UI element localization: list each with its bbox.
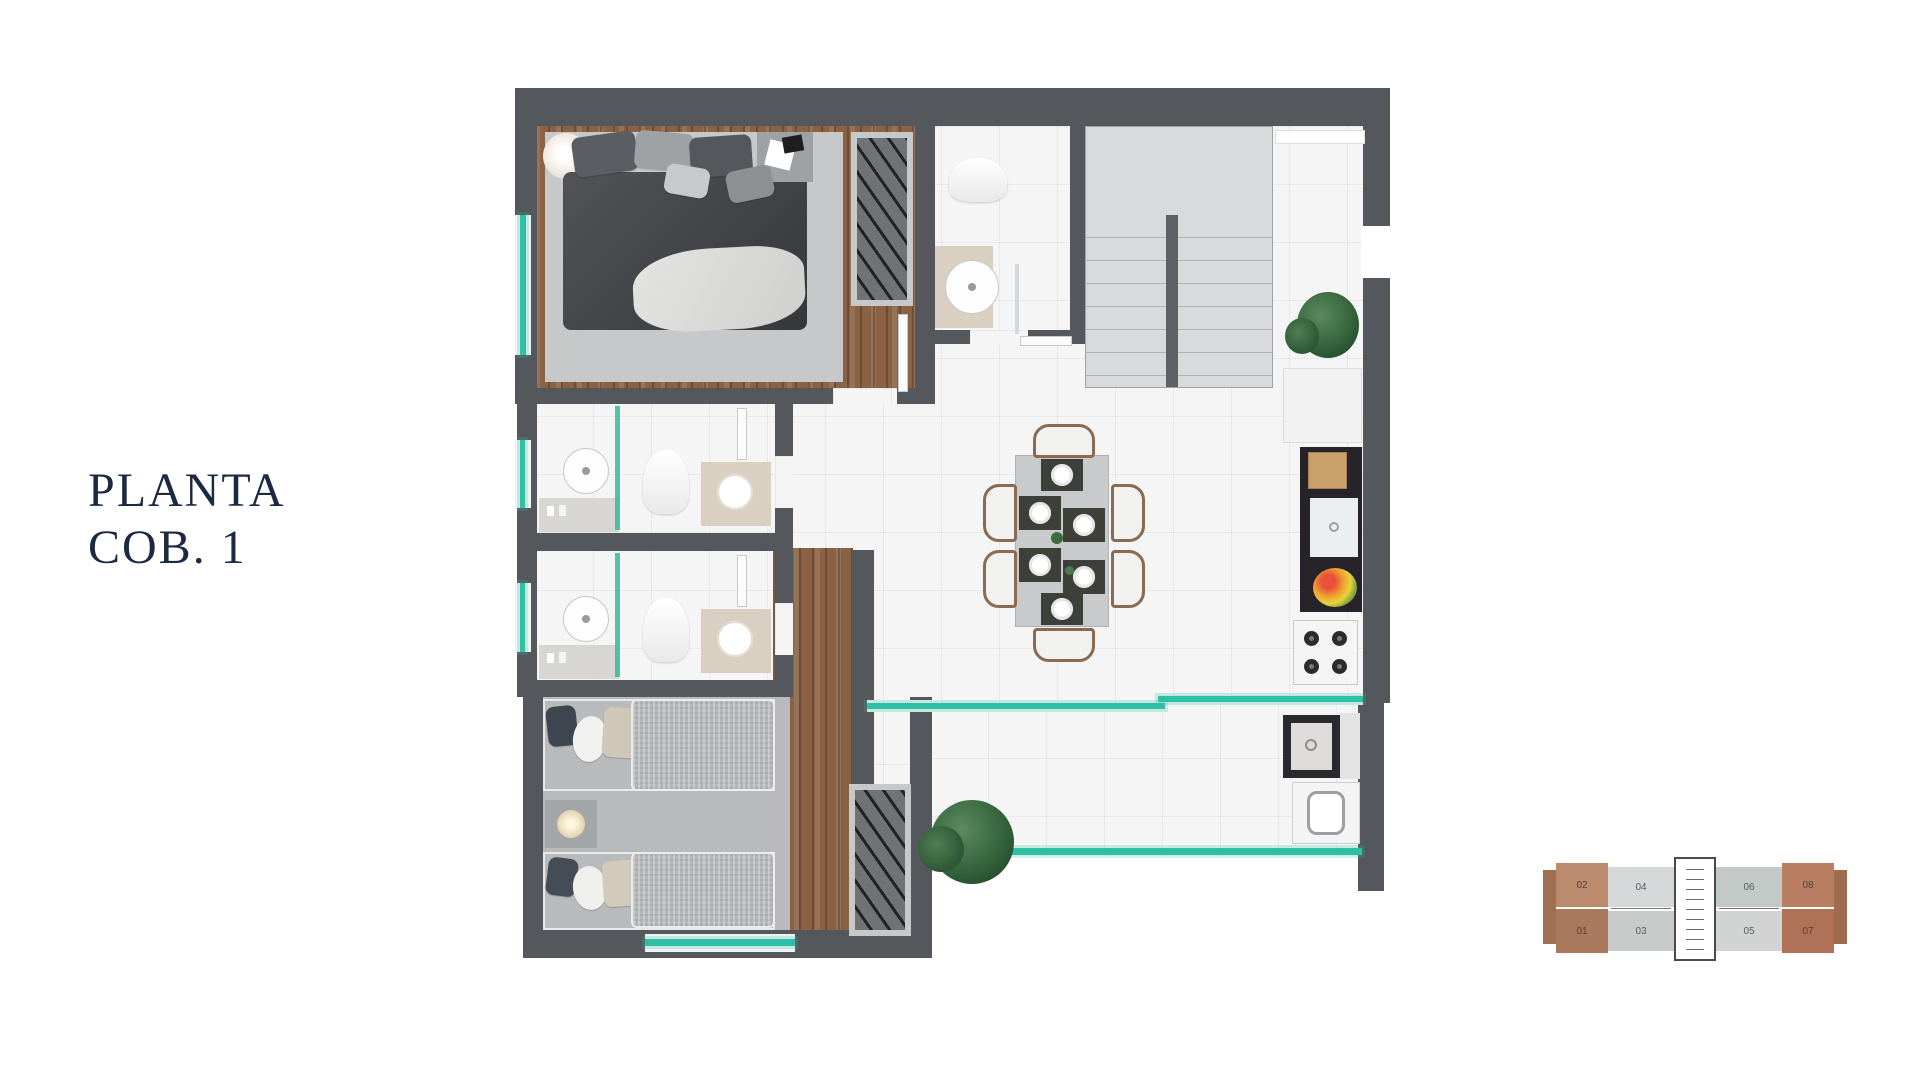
- dining-chair: [1033, 424, 1095, 458]
- window-bath3: [520, 583, 525, 652]
- door-leaf-bath2: [737, 408, 747, 460]
- page-title: PLANTA COB. 1: [88, 462, 285, 576]
- balcony-plant: [930, 800, 1014, 884]
- stove: [1293, 620, 1358, 685]
- wall-bath1-east: [1070, 88, 1085, 344]
- unit-07-label: 07: [1802, 926, 1813, 937]
- bath2-bottle: [559, 505, 566, 516]
- key-plan-unit-04: 04: [1608, 867, 1674, 907]
- key-plan-left-tab: [1543, 870, 1556, 944]
- key-plan-unit-02: 02: [1556, 863, 1608, 907]
- place-setting: [1019, 548, 1061, 582]
- wall-bedroom2-east: [910, 697, 932, 958]
- kitchen-plant: [1297, 292, 1359, 358]
- balcony-glass-left: [867, 703, 1165, 709]
- bath3-shower-glass: [615, 553, 620, 677]
- washer-door: [1307, 791, 1345, 835]
- bedroom2-nightstand: [545, 800, 597, 848]
- laundry-tank: [1283, 715, 1340, 778]
- staircase: [1085, 126, 1273, 388]
- bath3-vanity: [539, 645, 619, 679]
- cutting-board: [1308, 452, 1347, 489]
- bath2-basin: [717, 474, 753, 510]
- dining-chair: [983, 550, 1017, 608]
- unit-04-label: 04: [1635, 882, 1646, 893]
- place-setting: [1019, 496, 1061, 530]
- bath1-toilet: [949, 158, 1007, 202]
- wall-notch: [1361, 226, 1393, 278]
- stove-burner: [1304, 659, 1319, 674]
- key-plan-unit-03: 03: [1608, 911, 1674, 951]
- title-line-2: COB. 1: [88, 519, 285, 576]
- bath3-bottle: [547, 653, 554, 663]
- dining-chair: [1033, 628, 1095, 662]
- unit-03-label: 03: [1635, 926, 1646, 937]
- bath1-shower-glass: [1015, 264, 1019, 334]
- bedroom2-lamp: [557, 810, 585, 838]
- bath2-bottle: [547, 506, 554, 516]
- place-setting: [1041, 459, 1083, 491]
- key-plan-corridor-line: [1611, 908, 1671, 909]
- dining-chair: [1111, 484, 1145, 542]
- washing-machine: [1292, 782, 1360, 844]
- tank-drain: [1305, 739, 1317, 751]
- window-bath2: [520, 440, 525, 508]
- wall-right-lower: [1358, 703, 1384, 891]
- unit-02-label: 02: [1576, 880, 1587, 891]
- bed2-blanket: [633, 701, 773, 789]
- window-bedroom1: [520, 215, 526, 355]
- bedroom1-closet: [851, 132, 913, 306]
- kitchen-sink: [1310, 498, 1358, 557]
- floor-plan: [515, 88, 1395, 968]
- table-centerpiece-plant: [1065, 566, 1074, 575]
- key-plan-corridor-line: [1719, 908, 1779, 909]
- stove-burner: [1332, 631, 1347, 646]
- kitchen-counter-white: [1283, 368, 1362, 443]
- bath3-toilet: [643, 598, 689, 662]
- key-plan-unit-07: 07: [1782, 909, 1834, 953]
- door-opening-bath3: [775, 603, 793, 655]
- bath2-shower-glass: [615, 406, 620, 530]
- place-setting: [1041, 593, 1083, 625]
- stair-steps: [1086, 237, 1272, 387]
- stove-burner: [1304, 631, 1319, 646]
- door-leaf-bedroom1: [898, 314, 908, 392]
- stove-burner: [1332, 659, 1347, 674]
- lobby-shelf: [1275, 130, 1365, 144]
- door-opening-bedroom1: [833, 388, 897, 404]
- wall-bedroom2-north: [517, 680, 775, 697]
- unit-01-label: 01: [1576, 926, 1587, 937]
- unit-08-label: 08: [1802, 880, 1813, 891]
- key-plan-core: [1674, 857, 1716, 961]
- key-plan-right-tab: [1834, 870, 1847, 944]
- bath2-shower-head: [563, 448, 609, 494]
- door-leaf-bath1: [1020, 336, 1072, 346]
- wall-left-lower: [523, 697, 543, 958]
- door-leaf-bath3: [737, 555, 747, 607]
- kitchen-counter-granite: [1300, 447, 1362, 612]
- key-plan-unit-05: 05: [1716, 911, 1782, 951]
- window-bedroom2: [645, 939, 795, 946]
- unit-05-label: 05: [1743, 926, 1754, 937]
- wall-hall-east: [852, 550, 874, 790]
- bath2-toilet: [643, 450, 689, 514]
- desk-laptop: [782, 134, 804, 153]
- bath2-vanity: [539, 498, 619, 532]
- bath1-shower-head: [945, 260, 999, 314]
- bedroom2-closet: [849, 784, 911, 936]
- bed3-blanket: [633, 854, 773, 926]
- dining-chair: [983, 484, 1017, 542]
- key-plan: 02 01 04 03 06 05 08 07: [1543, 853, 1849, 967]
- table-centerpiece-plant: [1051, 532, 1063, 544]
- wall-bedroom1-east: [915, 88, 935, 388]
- key-plan-unit-06: 06: [1716, 867, 1782, 907]
- page: PLANTA COB. 1: [0, 0, 1920, 1080]
- balcony-glass-right: [1158, 696, 1363, 702]
- laundry-cabinet: [1340, 713, 1360, 779]
- title-line-1: PLANTA: [88, 462, 285, 519]
- key-plan-unit-08: 08: [1782, 863, 1834, 907]
- door-opening-bath2: [775, 456, 793, 508]
- wall-bath-divider: [517, 533, 775, 551]
- stair-rail: [1166, 215, 1178, 387]
- wall-right-upper: [1363, 88, 1390, 703]
- bath3-shower-head: [563, 596, 609, 642]
- fruit-bowl: [1313, 568, 1357, 607]
- wall-top: [515, 88, 1390, 126]
- bath3-basin: [717, 621, 753, 657]
- sink-drain: [1329, 522, 1339, 532]
- place-setting: [1063, 508, 1105, 542]
- unit-06-label: 06: [1743, 882, 1754, 893]
- dining-chair: [1111, 550, 1145, 608]
- key-plan-unit-01: 01: [1556, 909, 1608, 953]
- bath3-bottle: [559, 652, 566, 663]
